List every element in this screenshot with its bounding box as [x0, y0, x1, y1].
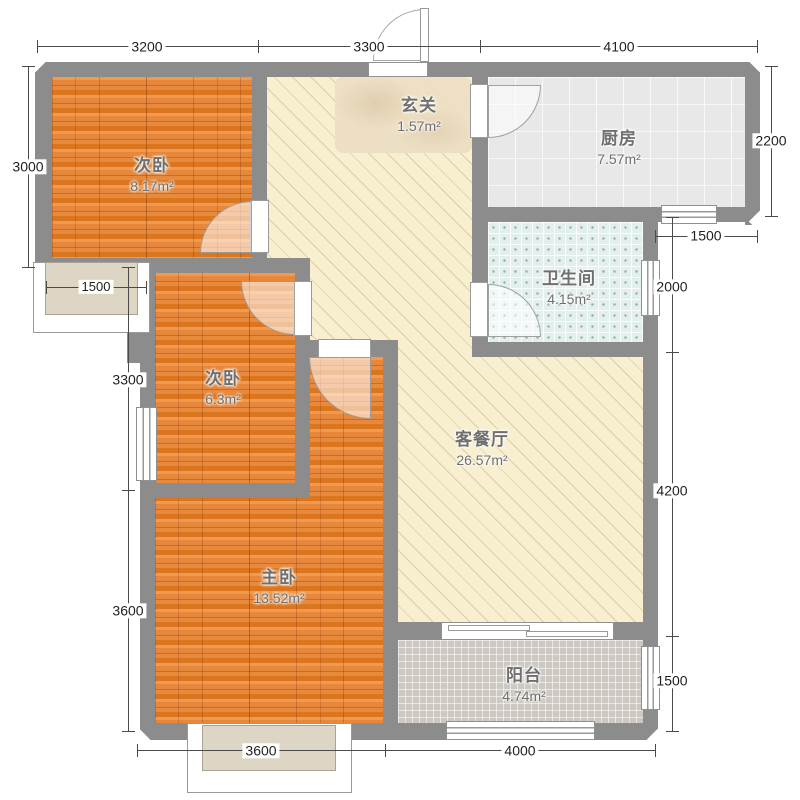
balcony-sliding-door — [441, 622, 614, 640]
bedroom1-door-leaf — [250, 200, 269, 253]
dim-tick — [146, 281, 147, 294]
bedroom2-door-leaf — [293, 281, 312, 336]
dim-tick — [258, 40, 259, 53]
dim-tick — [385, 744, 386, 757]
room-area: 1.57m² — [397, 117, 441, 135]
entry-door-leaf — [420, 8, 429, 62]
dim-label-top-3: 4100 — [600, 39, 637, 54]
dim-tick — [666, 636, 679, 637]
master-door-leaf — [318, 339, 371, 358]
room-label-bathroom: 卫生间 4.15m² — [542, 268, 596, 308]
floor-plan: 次卧 8.17m² 玄关 1.57m² 厨房 7.57m² 卫生间 4.15m²… — [0, 0, 800, 800]
wall-master-right — [383, 340, 398, 740]
room-label-hallway: 玄关 1.57m² — [397, 95, 441, 135]
dim-tick — [765, 216, 778, 217]
dim-label-bottom-4000: 4000 — [501, 743, 538, 758]
dim-line-bottom — [137, 750, 655, 751]
room-label-balcony: 阳台 4.74m² — [502, 665, 546, 705]
dim-label-right-1500: 1500 — [653, 673, 690, 688]
dim-label-bay-1500: 1500 — [79, 280, 114, 294]
dim-label-right-2200: 2200 — [752, 133, 789, 148]
room-label-bedroom1: 次卧 8.17m² — [130, 155, 174, 195]
dim-tick — [765, 66, 778, 67]
dim-label-left-2: 3300 — [109, 372, 146, 387]
wall-left-step — [127, 333, 155, 363]
dim-label-top-1: 3200 — [128, 39, 165, 54]
sliding-door-panel — [448, 625, 530, 631]
dim-tick — [757, 40, 758, 53]
room-area: 8.17m² — [130, 177, 174, 195]
window-balcony-south — [446, 721, 595, 740]
dim-tick — [666, 352, 679, 353]
room-area: 7.57m² — [597, 150, 641, 168]
dim-tick — [655, 230, 656, 243]
dim-label-top-2: 3300 — [350, 39, 387, 54]
dim-label-right-4200: 4200 — [653, 483, 690, 498]
room-name: 玄关 — [397, 95, 441, 117]
dim-tick — [122, 731, 135, 732]
dim-label-bottom-3600: 3600 — [242, 743, 279, 758]
room-name: 次卧 — [130, 155, 174, 177]
dim-tick — [137, 744, 138, 757]
room-name: 客餐厅 — [455, 429, 509, 451]
window-kitchen-south — [661, 205, 717, 224]
dim-tick — [37, 40, 38, 53]
kitchen-door-leaf — [470, 84, 488, 138]
room-label-master: 主卧 13.52m² — [253, 567, 304, 607]
dim-label-left-1: 3000 — [9, 159, 46, 174]
dim-tick — [655, 744, 656, 757]
dim-tick — [480, 40, 481, 53]
entry-door-threshold — [368, 62, 428, 77]
wall-bedroom2-master-divider — [140, 483, 310, 498]
room-area: 13.52m² — [253, 589, 304, 607]
dim-tick — [22, 267, 35, 268]
dim-tick — [666, 217, 679, 218]
room-label-bedroom2: 次卧 6.3m² — [205, 368, 241, 408]
room-name: 主卧 — [253, 567, 304, 589]
dim-tick — [22, 66, 35, 67]
dim-label-right-2000: 2000 — [653, 279, 690, 294]
dim-label-right-1500k: 1500 — [687, 228, 724, 243]
dim-label-left-3: 3600 — [109, 603, 146, 618]
room-name: 阳台 — [502, 665, 546, 687]
room-area: 4.15m² — [542, 290, 596, 308]
wall-bathroom-south — [472, 342, 658, 357]
room-area: 6.3m² — [205, 390, 241, 408]
room-area: 4.74m² — [502, 687, 546, 705]
room-name: 卫生间 — [542, 268, 596, 290]
room-name: 厨房 — [597, 128, 641, 150]
room-name: 次卧 — [205, 368, 241, 390]
room-area: 26.57m² — [455, 451, 509, 469]
dim-tick — [122, 267, 135, 268]
room-label-living: 客餐厅 26.57m² — [455, 429, 509, 469]
window-bedroom2-left — [136, 407, 157, 481]
dim-tick — [666, 731, 679, 732]
room-label-kitchen: 厨房 7.57m² — [597, 128, 641, 168]
dim-tick — [46, 281, 47, 294]
dim-tick — [757, 230, 758, 243]
bathroom-door-leaf — [470, 282, 488, 337]
sliding-door-panel — [526, 631, 608, 637]
